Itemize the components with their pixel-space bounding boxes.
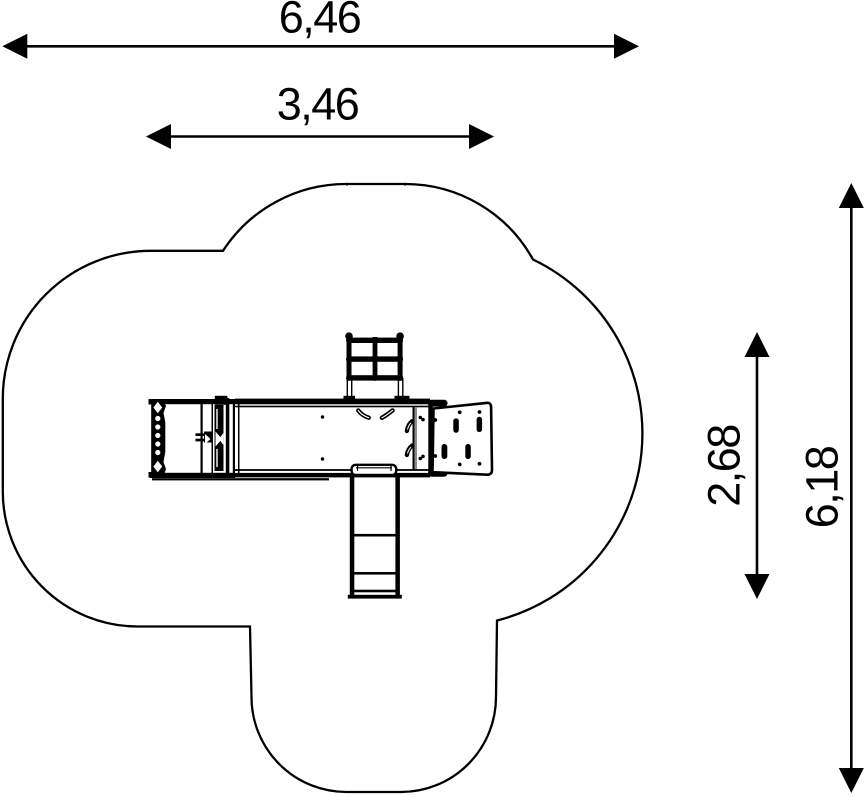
svg-text:6,46: 6,46	[279, 0, 361, 43]
svg-text:2,68: 2,68	[699, 425, 750, 507]
svg-text:6,18: 6,18	[797, 446, 848, 528]
svg-text:3,46: 3,46	[277, 79, 359, 130]
